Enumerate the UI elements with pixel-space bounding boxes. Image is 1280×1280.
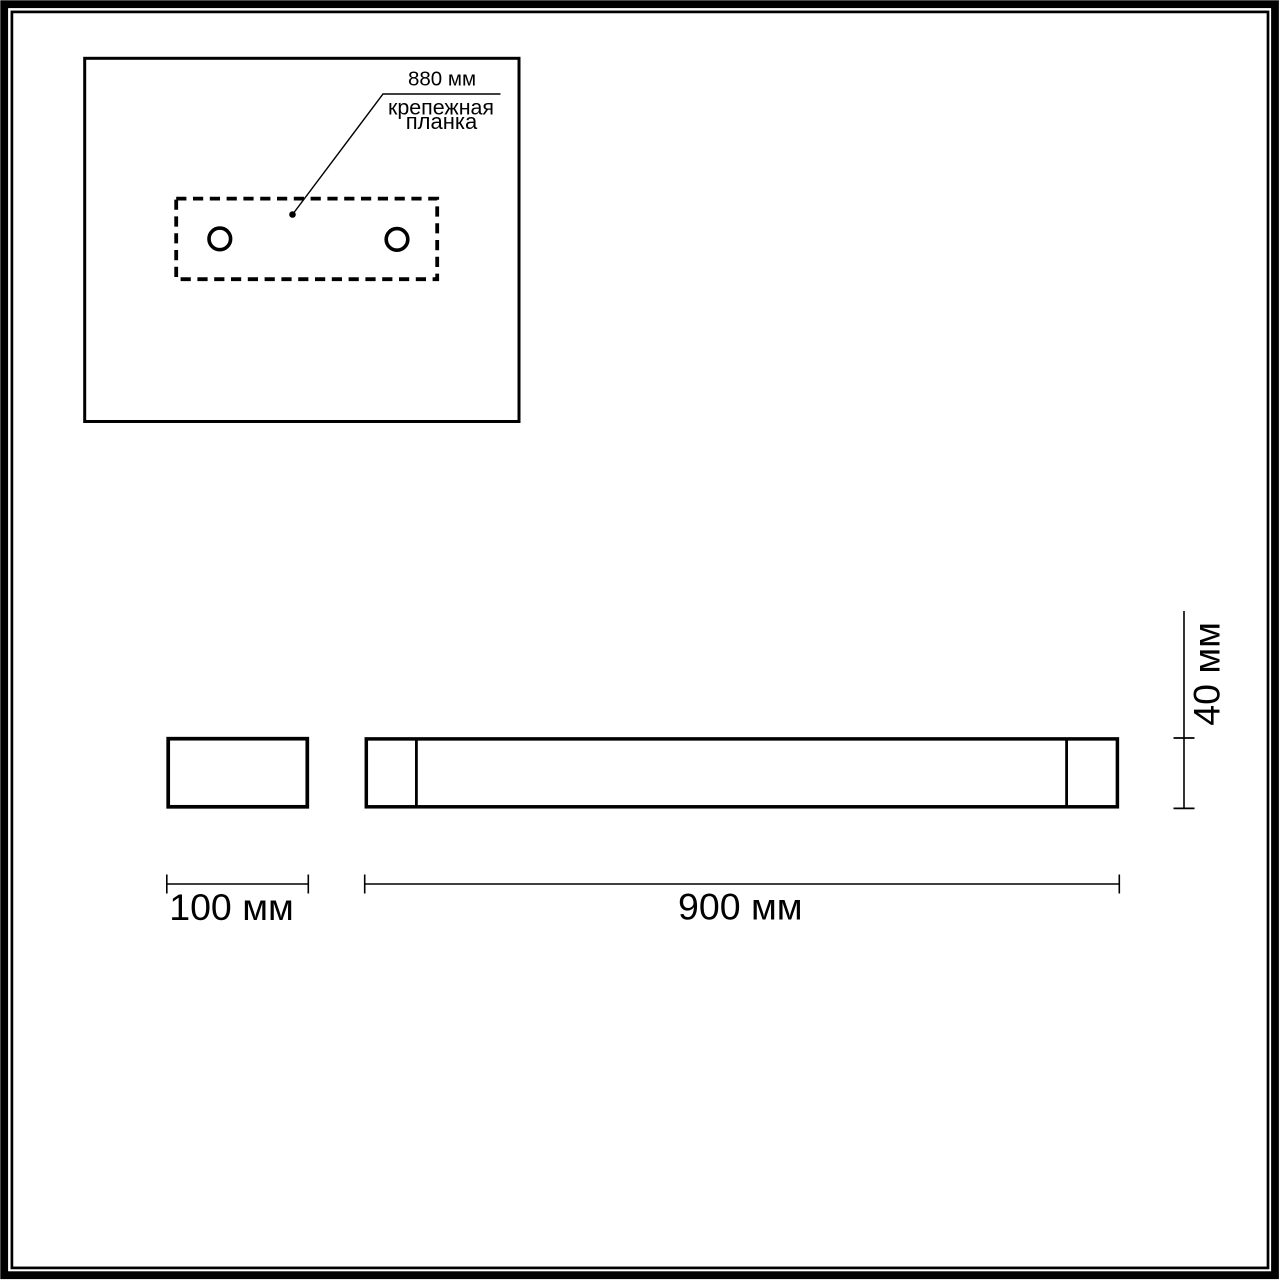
svg-text:40 мм: 40 мм	[1185, 622, 1227, 726]
svg-text:планка: планка	[406, 109, 478, 134]
svg-text:100 мм: 100 мм	[169, 886, 294, 928]
svg-text:900 мм: 900 мм	[678, 886, 803, 928]
svg-text:880 мм: 880 мм	[408, 68, 476, 91]
